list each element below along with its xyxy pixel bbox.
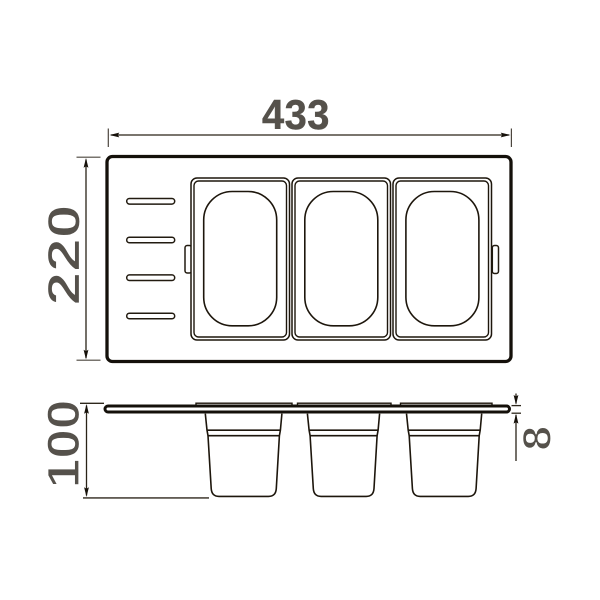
svg-text:100: 100: [39, 400, 89, 489]
svg-text:433: 433: [262, 91, 330, 138]
svg-text:220: 220: [40, 205, 90, 306]
svg-text:8: 8: [514, 426, 559, 450]
